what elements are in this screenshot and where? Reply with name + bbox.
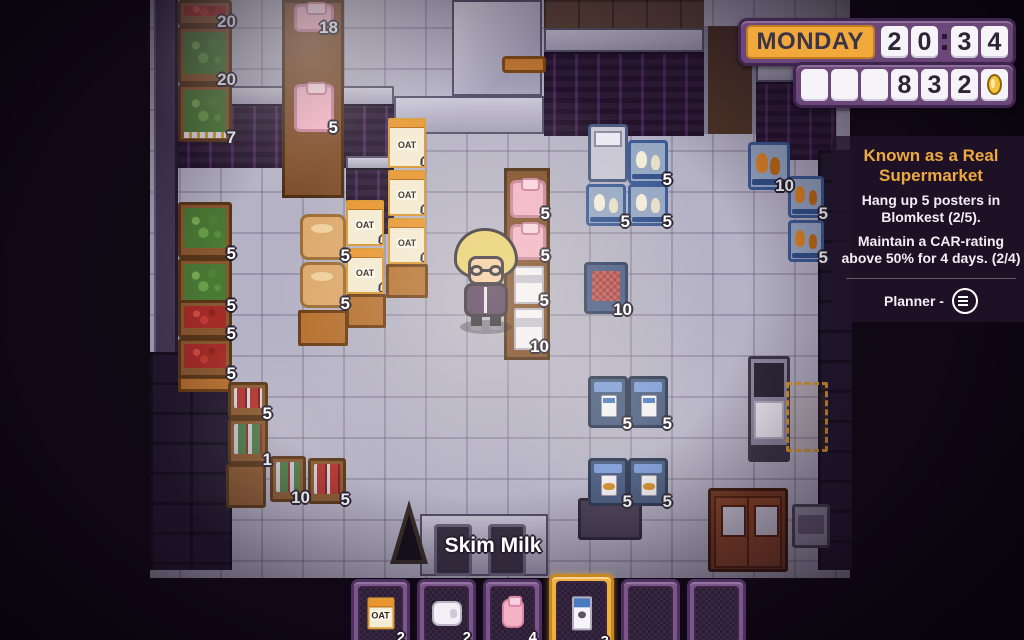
planner-label: Planner -: [884, 293, 944, 309]
money-digit: [861, 69, 888, 101]
produce-crate-lettuce[interactable]: 7: [178, 84, 232, 142]
fridge-skim-milk[interactable]: 5: [628, 376, 668, 428]
hotbar-slot-skim-milk-selected[interactable]: 3: [549, 574, 614, 640]
left-wall: [154, 0, 178, 352]
clock-digit: 4: [981, 26, 1008, 58]
day-time-panel: MONDAY 2 0 3 4: [738, 18, 1016, 66]
hotbar-slot-oat-box[interactable]: OAT 2: [351, 579, 410, 640]
money-panel: 8 3 2: [793, 62, 1016, 108]
shelf-oat-cereal[interactable]: OAT 5: [388, 218, 426, 264]
divider: [846, 278, 1016, 279]
game-viewport: 20 20 7 18 5 5 5 5 5 5 5 OAT 5 OAT 5 OAT…: [0, 0, 1024, 640]
strawberry-milk-icon: [502, 599, 524, 628]
shelf-bread[interactable]: 5: [300, 214, 346, 260]
entrance-doors[interactable]: [708, 488, 788, 572]
money-digit: [831, 69, 858, 101]
skim-milk-icon: [572, 596, 592, 630]
freezer-rotisserie[interactable]: 5: [788, 220, 824, 262]
hotbar-slot-empty[interactable]: [687, 579, 746, 640]
fridge-fish[interactable]: 5: [588, 458, 628, 506]
held-item-label: Skim Milk: [393, 534, 593, 558]
tall-fridge[interactable]: [748, 356, 790, 462]
empty-crate[interactable]: [226, 464, 266, 508]
player-character: [452, 228, 520, 334]
shelf-base: [386, 264, 428, 298]
freezer-chicken[interactable]: 5: [586, 184, 626, 226]
clock-digit: 2: [881, 26, 908, 58]
bench[interactable]: [502, 56, 546, 73]
shelf-canned-soup[interactable]: 5: [228, 382, 268, 418]
fridge-skim-milk[interactable]: 5: [588, 376, 628, 428]
produce-crate-tomatoes[interactable]: 20: [178, 0, 232, 26]
planner-button[interactable]: Planner -: [838, 288, 1024, 314]
shelf-base: [346, 294, 386, 328]
shelf-base: [178, 376, 232, 392]
quest-title: Known as a Real Supermarket: [838, 146, 1024, 185]
interior-wall-block: [452, 0, 542, 96]
clock-colon-icon: [941, 30, 948, 54]
shelf-oat-cereal[interactable]: OAT 5: [346, 248, 384, 294]
shelf-base: [298, 310, 348, 346]
clock-digit: 0: [911, 26, 938, 58]
fridge-unit[interactable]: [588, 124, 628, 182]
money-digit: 2: [951, 69, 978, 101]
coin-cell: [981, 69, 1008, 101]
shelf-pastry[interactable]: 5: [294, 84, 334, 132]
shelf-oat-cereal[interactable]: OAT 5: [346, 200, 384, 246]
clock: 2 0 3 4: [881, 26, 1008, 58]
money-digit: [801, 69, 828, 101]
shelf-canned-goods[interactable]: 1: [228, 418, 268, 464]
freezer-rotisserie[interactable]: 10: [748, 142, 790, 190]
shelf-oat-cereal[interactable]: OAT 5: [388, 170, 426, 216]
shelf-pastry[interactable]: 18: [294, 4, 334, 32]
quest-panel: Known as a Real Supermarket Hang up 5 po…: [832, 136, 1024, 322]
hotbar-slot-empty[interactable]: [621, 579, 680, 640]
freezer-ground-meat[interactable]: 10: [584, 262, 628, 314]
fridge-fish[interactable]: 5: [628, 458, 668, 506]
shelf-oat-cereal[interactable]: OAT 5: [388, 118, 426, 168]
freezer-chicken[interactable]: 5: [628, 184, 668, 226]
shopping-cart[interactable]: [792, 504, 830, 548]
gold-coin-icon: [987, 74, 1002, 95]
quest-task: Maintain a CAR-rating above 50% for 4 da…: [838, 233, 1024, 267]
produce-crate-lettuce[interactable]: 5: [178, 202, 232, 258]
shelf-bread[interactable]: 5: [300, 262, 346, 308]
freezer-chicken[interactable]: 5: [628, 140, 668, 184]
hotbar: OAT 2 2 4 3: [351, 574, 746, 640]
produce-crate-apples[interactable]: 5: [178, 300, 232, 338]
toilet-paper-icon: [432, 601, 462, 626]
shelf-jam[interactable]: 5: [510, 180, 546, 218]
hotbar-slot-strawberry-milk[interactable]: 4: [483, 579, 542, 640]
money-digit: 8: [891, 69, 918, 101]
shelf-canned-soup[interactable]: 5: [308, 458, 346, 504]
money-digit: 3: [921, 69, 948, 101]
placement-preview-box[interactable]: [786, 382, 828, 452]
produce-crate-apples[interactable]: 5: [178, 338, 232, 378]
circle-menu-icon: [952, 288, 978, 314]
hotbar-slot-toilet-paper[interactable]: 2: [417, 579, 476, 640]
quest-task: Hang up 5 posters in Blomkest (2/5).: [838, 192, 1024, 226]
oat-box-icon: OAT: [367, 597, 394, 629]
clock-digit: 3: [951, 26, 978, 58]
produce-crate-lettuce[interactable]: 20: [178, 26, 232, 84]
wall-cap: [544, 28, 704, 52]
shelf-canned-goods[interactable]: 10: [270, 456, 306, 502]
day-label: MONDAY: [746, 25, 875, 59]
backroom-floor: [544, 0, 704, 30]
